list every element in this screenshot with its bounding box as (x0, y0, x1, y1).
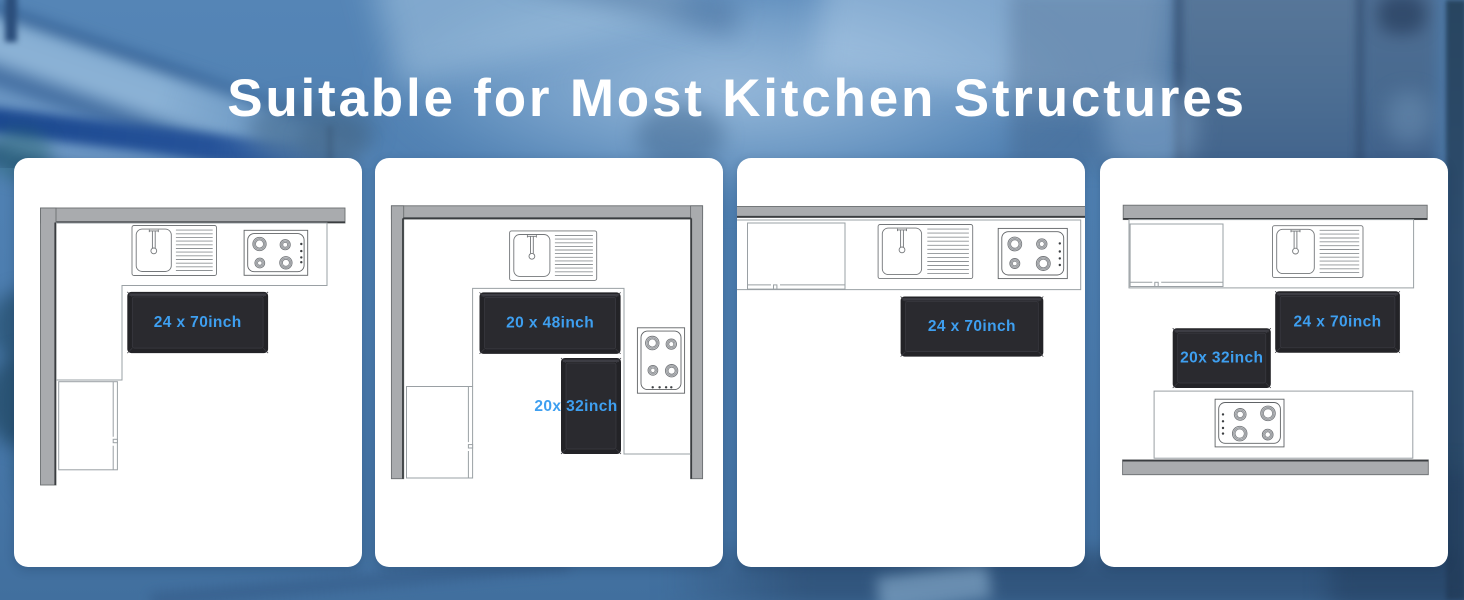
svg-text:24 x 70inch: 24 x 70inch (154, 314, 242, 331)
svg-text:24 x 70inch: 24 x 70inch (1294, 314, 1382, 331)
svg-text:24 x 70inch: 24 x 70inch (928, 318, 1016, 335)
svg-text:20x 32inch: 20x 32inch (534, 398, 617, 415)
svg-text:20x 32inch: 20x 32inch (1180, 350, 1263, 367)
svg-text:20 x 48inch: 20 x 48inch (506, 315, 594, 332)
